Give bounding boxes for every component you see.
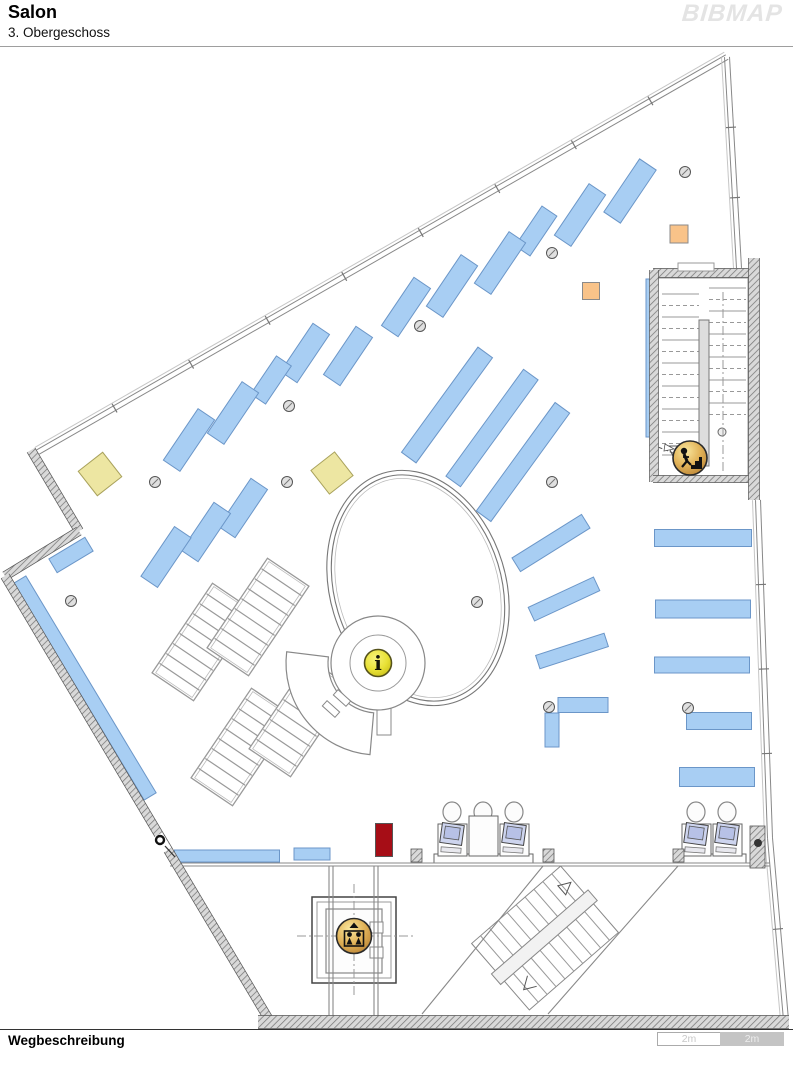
floorplan-map[interactable]: i xyxy=(0,0,793,1067)
footer: Wegbeschreibung 2m2m xyxy=(0,1029,793,1067)
scale-segment-2: 2m xyxy=(720,1032,784,1046)
bookshelves xyxy=(14,159,755,862)
page-title: Salon xyxy=(8,2,57,23)
elevator-icon[interactable] xyxy=(337,919,372,954)
scale-bar: 2m2m xyxy=(657,1032,784,1046)
wegbeschreibung-label: Wegbeschreibung xyxy=(8,1033,125,1048)
scale-segment-1: 2m xyxy=(657,1032,721,1046)
bibmap-page: i Salon 3. Obergeschoss BIBMAP Wegbeschr… xyxy=(0,0,793,1067)
svg-text:i: i xyxy=(374,651,382,675)
bibmap-logo: BIBMAP xyxy=(681,0,784,28)
header: Salon 3. Obergeschoss BIBMAP xyxy=(0,0,793,47)
floor-subtitle: 3. Obergeschoss xyxy=(8,25,110,40)
info-icon[interactable]: i xyxy=(365,650,392,677)
